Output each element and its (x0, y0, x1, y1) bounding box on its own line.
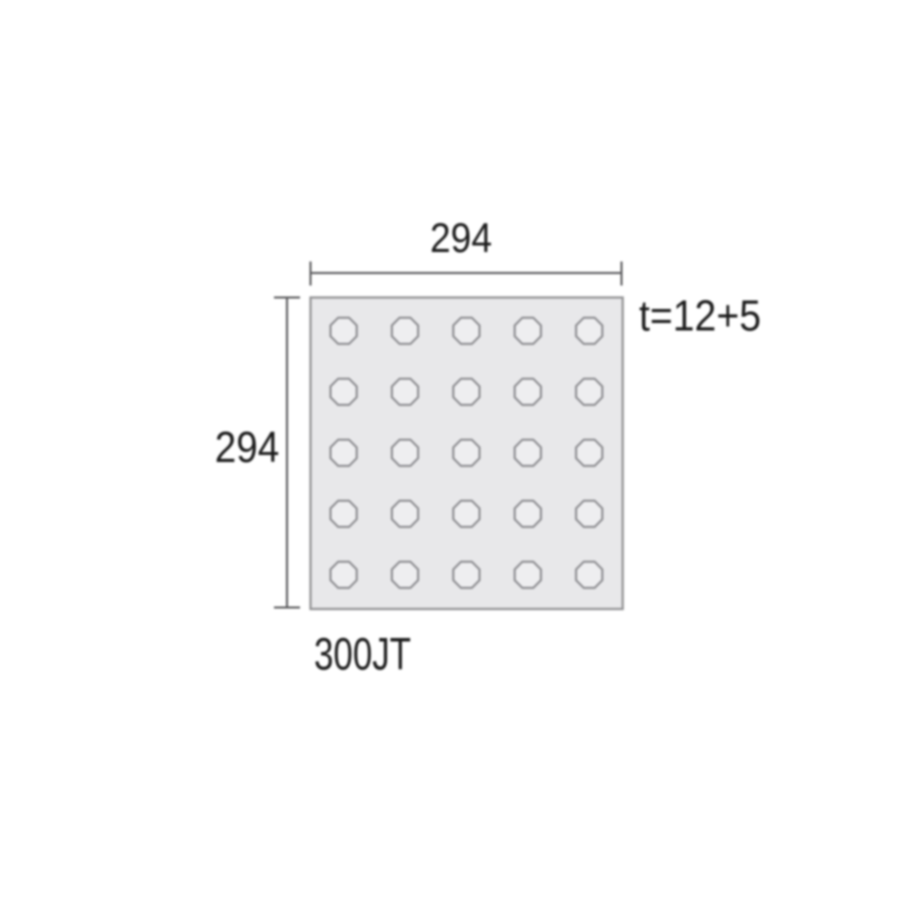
svg-text:294: 294 (215, 424, 280, 472)
svg-text:t=12+5: t=12+5 (639, 293, 761, 341)
svg-text:294: 294 (430, 214, 492, 261)
svg-text:300JT: 300JT (314, 628, 411, 679)
